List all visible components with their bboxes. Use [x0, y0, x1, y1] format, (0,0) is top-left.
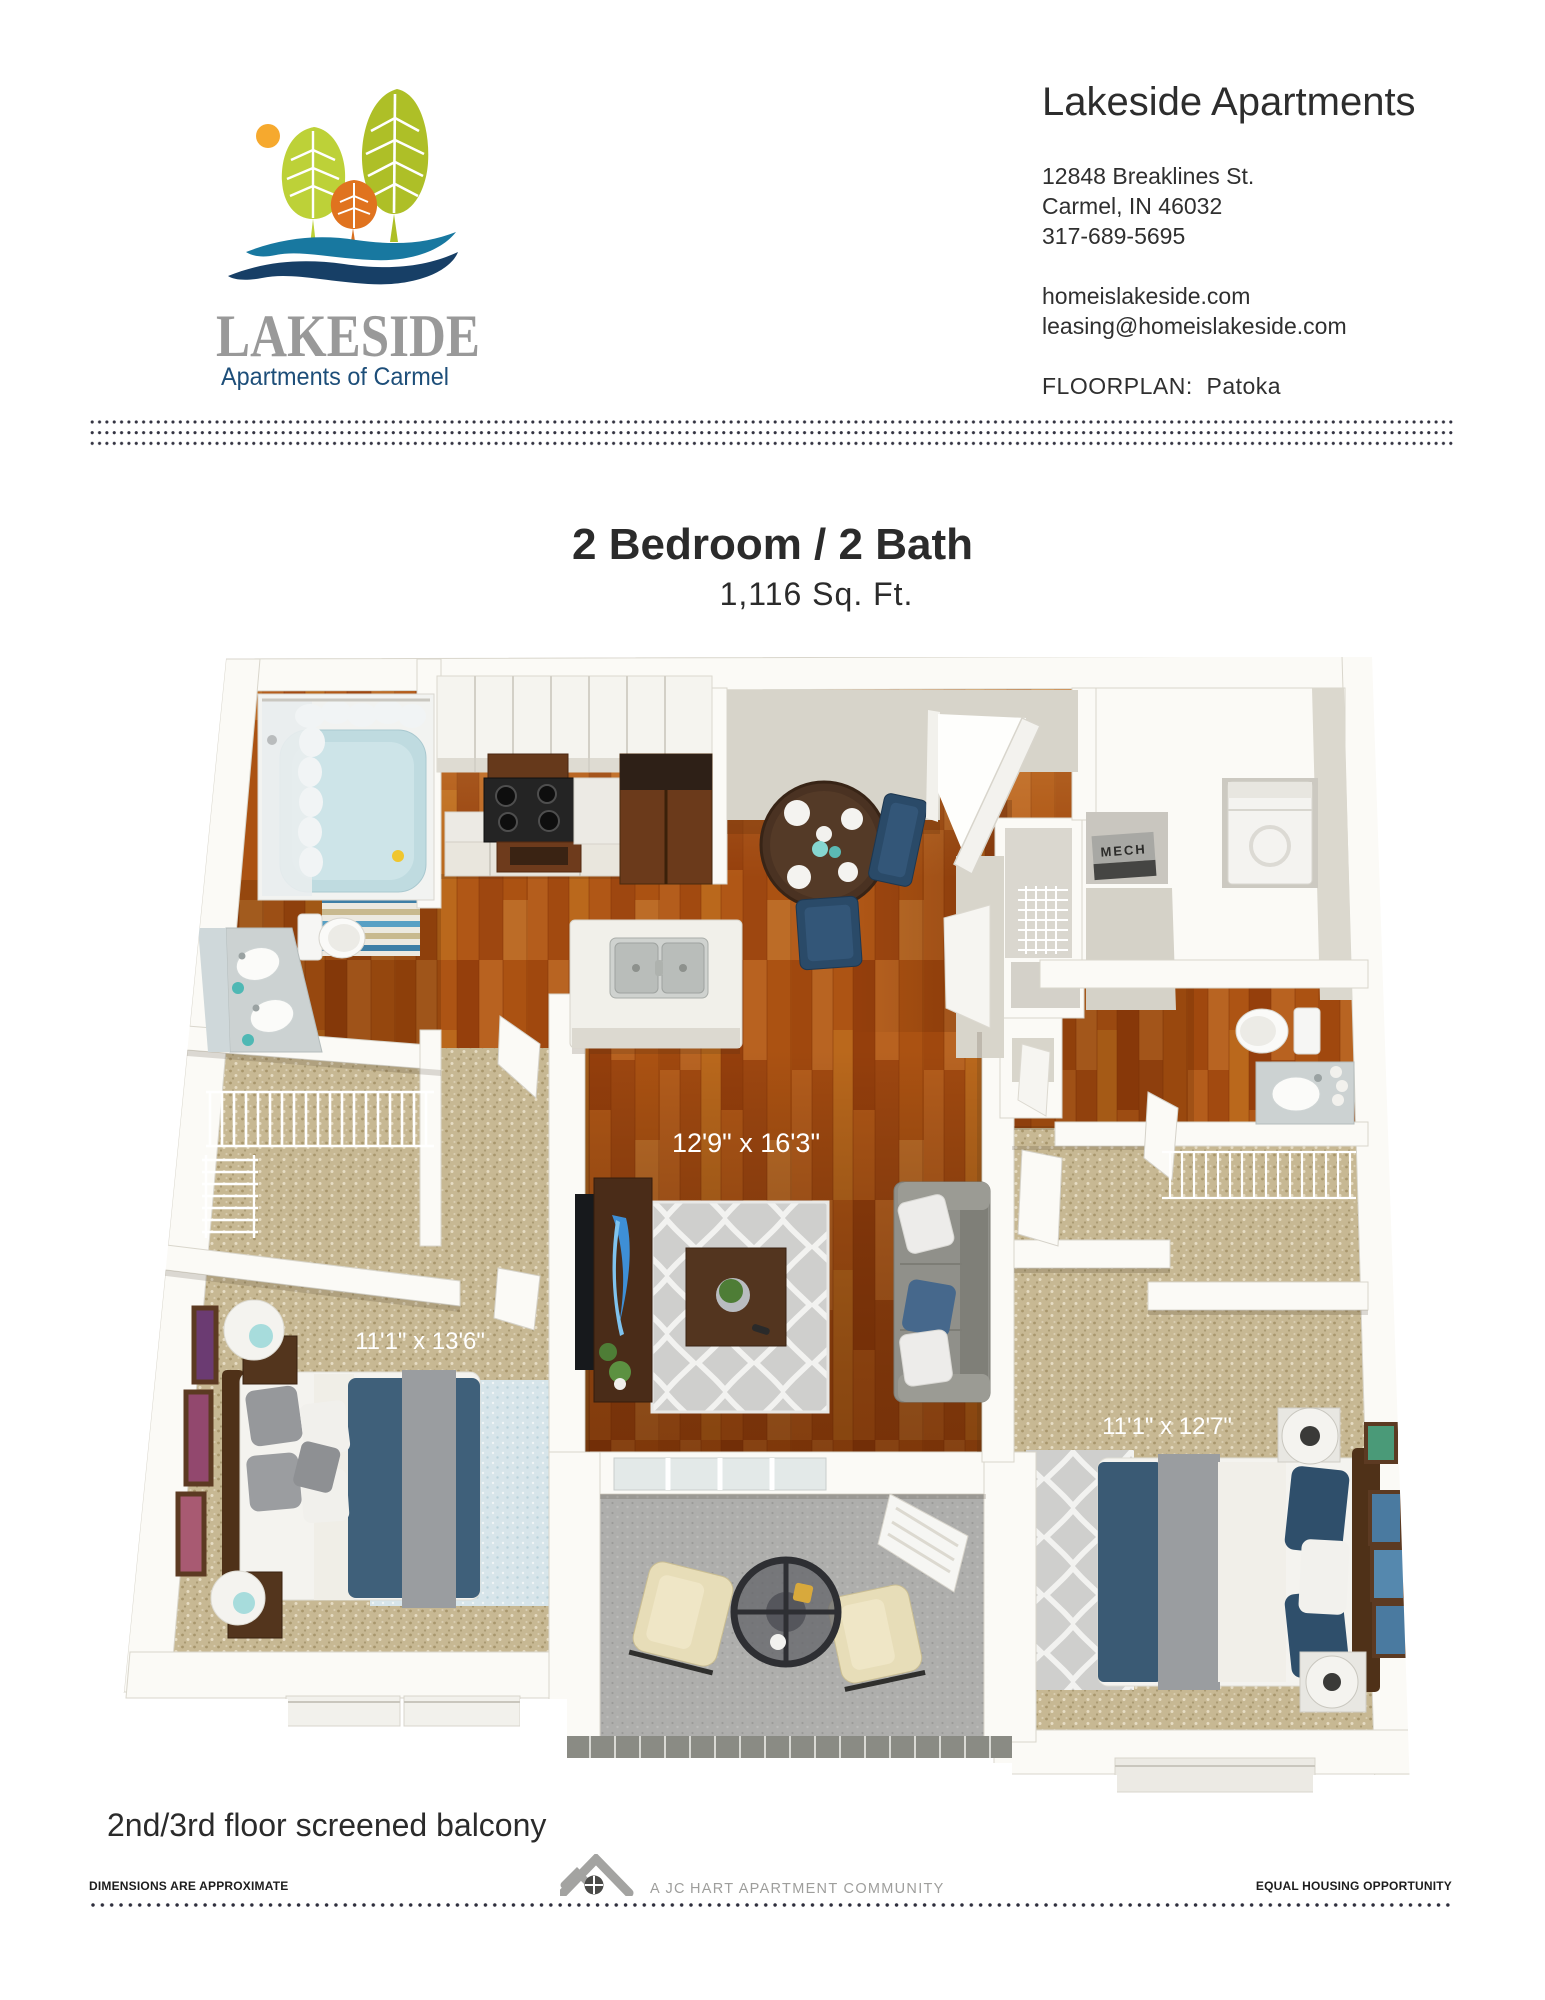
svg-text:11'1" x 13'6": 11'1" x 13'6" [355, 1328, 485, 1355]
svg-text:LAKESIDE: LAKESIDE [216, 303, 480, 369]
svg-text:12'9" x 16'3": 12'9" x 16'3" [672, 1128, 820, 1158]
svg-text:11'1" x 12'7": 11'1" x 12'7" [1102, 1413, 1232, 1440]
svg-text:Apartments of Carmel: Apartments of Carmel [221, 363, 449, 391]
